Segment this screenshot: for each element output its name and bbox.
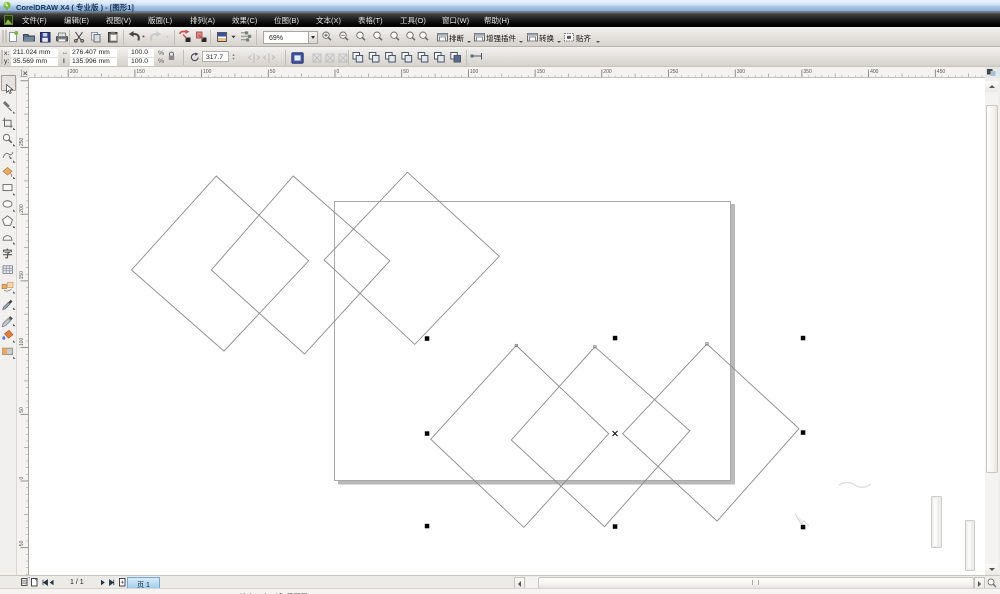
svg-text:250: 250 (19, 137, 25, 146)
svg-text:350: 350 (803, 69, 812, 75)
svg-text:0: 0 (19, 477, 25, 480)
svg-text:200: 200 (70, 69, 79, 75)
svg-text:0: 0 (337, 69, 340, 75)
svg-text:字: 字 (3, 248, 13, 261)
svg-text:200: 200 (603, 69, 612, 75)
svg-text:100: 100 (203, 69, 212, 75)
svg-text:200: 200 (19, 204, 25, 213)
svg-text:50: 50 (19, 407, 25, 413)
svg-text:300: 300 (737, 69, 746, 75)
svg-text:150: 150 (136, 69, 145, 75)
svg-text:250: 250 (670, 69, 679, 75)
svg-text:50: 50 (403, 69, 409, 75)
svg-text:100: 100 (19, 338, 25, 347)
svg-text:50: 50 (19, 540, 25, 546)
svg-text:400: 400 (870, 69, 879, 75)
svg-text:150: 150 (537, 69, 546, 75)
svg-text:100: 100 (470, 69, 479, 75)
svg-text:450: 450 (937, 69, 946, 75)
svg-text:150: 150 (19, 271, 25, 280)
svg-text:50: 50 (270, 69, 276, 75)
